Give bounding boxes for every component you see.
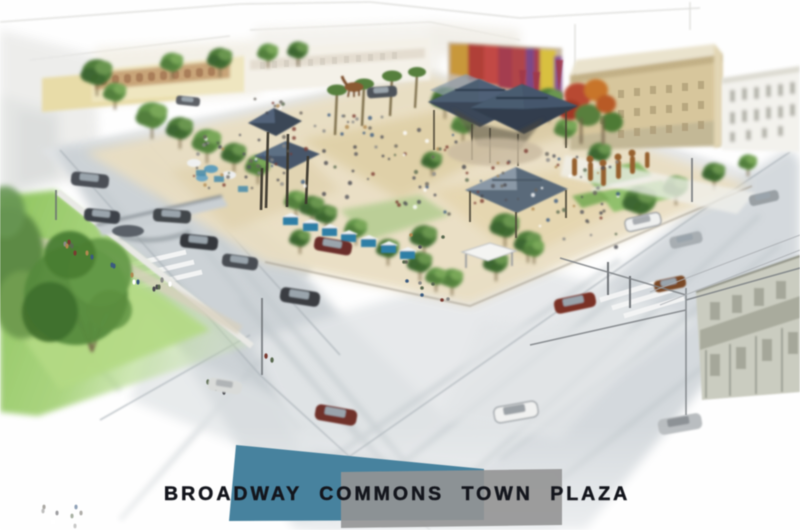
svg-text:BROADWAY COMMONS TOWN PLAZA: BROADWAY COMMONS TOWN PLAZA [164, 483, 630, 505]
